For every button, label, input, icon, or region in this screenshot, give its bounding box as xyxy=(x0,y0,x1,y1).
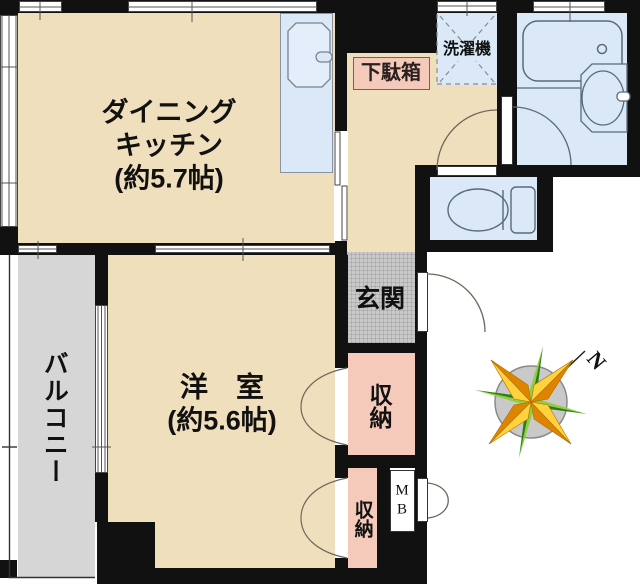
front-door xyxy=(417,272,428,332)
closet-opening-upper xyxy=(335,368,348,445)
meter-box-line2: B xyxy=(395,500,408,519)
wall xyxy=(390,532,415,570)
balcony-label: バルコニー xyxy=(39,351,70,486)
compass-north-label: N xyxy=(582,346,611,374)
western-room-name: 洋 室 xyxy=(167,370,277,404)
window xyxy=(18,245,57,253)
dining-kitchen-line2: キッチン xyxy=(102,130,237,163)
compass: N xyxy=(475,346,611,458)
dining-kitchen-size: (約5.7帖) xyxy=(102,162,237,195)
meter-box-door xyxy=(417,478,428,522)
balcony-window xyxy=(95,305,108,473)
washing-machine-label: 洗濯機 xyxy=(443,40,491,60)
window xyxy=(533,1,605,12)
wall xyxy=(627,0,640,177)
western-room-label: 洋 室 (約5.6帖) xyxy=(167,370,277,437)
wall xyxy=(0,560,17,578)
meter-box-line1: M xyxy=(395,481,408,500)
storage-upper-label: 収納 xyxy=(365,383,393,429)
toilet-room xyxy=(430,177,537,240)
sliding-partition xyxy=(155,245,330,253)
compass-orange-points xyxy=(489,360,573,444)
kitchen-counter xyxy=(280,13,333,173)
wall xyxy=(335,343,427,353)
wall xyxy=(335,455,427,468)
window xyxy=(437,1,497,12)
dining-kitchen-label: ダイニング キッチン (約5.7帖) xyxy=(102,97,237,196)
dining-kitchen-line1: ダイニング xyxy=(102,97,237,130)
bathroom xyxy=(517,13,627,165)
entrance-label: 玄関 xyxy=(355,284,405,315)
storage-lower-label: 収納 xyxy=(350,500,373,538)
meter-box-label: M B xyxy=(395,481,408,519)
window-wall-left xyxy=(0,15,18,227)
wall xyxy=(377,468,390,570)
toilet-door xyxy=(437,166,497,176)
floor-plan: N ダイニング キッチン (約5.7帖) 洋 室 (約5.6帖) バルコニー 玄… xyxy=(0,0,640,584)
meter-box-door-arc xyxy=(428,483,448,518)
wall xyxy=(347,13,437,53)
wall xyxy=(97,568,427,584)
sliding-door-opening xyxy=(334,131,348,241)
front-door-arc xyxy=(427,274,485,332)
window xyxy=(128,1,317,12)
wall xyxy=(415,240,553,252)
shoe-cabinet-label: 下駄箱 xyxy=(361,61,421,85)
western-room-size: (約5.6帖) xyxy=(167,405,277,438)
bathroom-door xyxy=(501,96,513,165)
closet-opening-lower xyxy=(335,478,348,558)
compass-green-points xyxy=(475,346,587,458)
window xyxy=(19,1,62,12)
